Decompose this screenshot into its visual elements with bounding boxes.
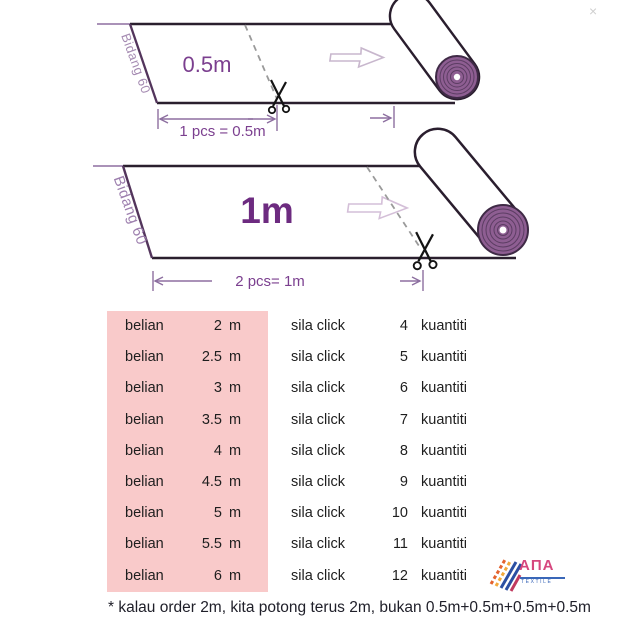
row-qty-value: 6	[368, 373, 408, 404]
row-buy-label: belian	[125, 467, 164, 498]
row-qty-value: 4	[368, 311, 408, 342]
dimension-label-top: 1 pcs = 0.5m	[160, 123, 285, 140]
row-buy-label: belian	[125, 311, 164, 342]
row-action-label: sila click	[291, 436, 345, 467]
row-qty-value: 9	[368, 467, 408, 498]
row-action-label: sila click	[291, 498, 345, 529]
row-action-label: sila click	[291, 405, 345, 436]
row-length-value: 3	[170, 373, 222, 404]
row-buy-label: belian	[125, 342, 164, 373]
row-qty-unit: kuantiti	[421, 373, 467, 404]
table-row: belian3.5msila click7kuantiti	[0, 405, 644, 436]
table-row: belian4.5msila click9kuantiti	[0, 467, 644, 498]
row-length-value: 4.5	[170, 467, 222, 498]
piece-size-label-bottom: 1m	[237, 190, 297, 232]
cut-line	[245, 25, 277, 99]
row-buy-label: belian	[125, 498, 164, 529]
logo-subtitle: TEXTILE	[521, 579, 552, 585]
fabric-roll	[381, 0, 488, 108]
table-row: belian2.5msila click5kuantiti	[0, 342, 644, 373]
footnote: * kalau order 2m, kita potong terus 2m, …	[108, 599, 591, 617]
row-length-value: 4	[170, 436, 222, 467]
product-instruction-image: ×	[0, 0, 644, 644]
row-qty-unit: kuantiti	[421, 311, 467, 342]
logo-text: AΠA	[519, 557, 555, 574]
row-qty-value: 5	[368, 342, 408, 373]
row-qty-unit: kuantiti	[421, 529, 467, 560]
row-length-value: 2.5	[170, 342, 222, 373]
row-buy-label: belian	[125, 373, 164, 404]
row-length-value: 2	[170, 311, 222, 342]
table-row: belian4msila click8kuantiti	[0, 436, 644, 467]
order-quantity-table: belian2msila click4kuantitibelian2.5msil…	[0, 311, 644, 592]
fabric-roll	[405, 119, 535, 262]
table-row: belian3msila click6kuantiti	[0, 373, 644, 404]
scissors-icon	[269, 80, 289, 113]
row-length-unit: m	[229, 311, 241, 342]
row-length-unit: m	[229, 436, 241, 467]
row-qty-unit: kuantiti	[421, 436, 467, 467]
row-qty-value: 8	[368, 436, 408, 467]
row-qty-value: 7	[368, 405, 408, 436]
row-length-value: 5	[170, 498, 222, 529]
row-buy-label: belian	[125, 405, 164, 436]
row-length-unit: m	[229, 529, 241, 560]
brand-logo: AΠA TEXTILE	[487, 553, 577, 597]
row-qty-unit: kuantiti	[421, 498, 467, 529]
row-length-unit: m	[229, 498, 241, 529]
row-action-label: sila click	[291, 373, 345, 404]
row-action-label: sila click	[291, 467, 345, 498]
row-qty-unit: kuantiti	[421, 342, 467, 373]
table-row: belian2msila click4kuantiti	[0, 311, 644, 342]
row-qty-value: 11	[368, 529, 408, 560]
row-length-unit: m	[229, 467, 241, 498]
row-buy-label: belian	[125, 529, 164, 560]
row-qty-unit: kuantiti	[421, 561, 467, 592]
row-length-value: 5.5	[170, 529, 222, 560]
roll-cutting-diagrams	[0, 0, 644, 312]
diagram-top-sheet	[97, 0, 488, 131]
row-action-label: sila click	[291, 342, 345, 373]
row-qty-unit: kuantiti	[421, 467, 467, 498]
row-action-label: sila click	[291, 561, 345, 592]
diagram-bottom-sheet	[93, 119, 536, 291]
row-length-value: 6	[170, 561, 222, 592]
table-row: belian5msila click10kuantiti	[0, 498, 644, 529]
row-action-label: sila click	[291, 311, 345, 342]
row-length-unit: m	[229, 561, 241, 592]
row-length-unit: m	[229, 342, 241, 373]
row-length-value: 3.5	[170, 405, 222, 436]
row-qty-value: 12	[368, 561, 408, 592]
row-qty-value: 10	[368, 498, 408, 529]
piece-size-label-top: 0.5m	[179, 52, 235, 78]
row-action-label: sila click	[291, 529, 345, 560]
scissors-icon	[414, 232, 437, 269]
dimension-label-bottom: 2 pcs= 1m	[205, 273, 335, 290]
row-qty-unit: kuantiti	[421, 405, 467, 436]
row-buy-label: belian	[125, 561, 164, 592]
cut-line	[367, 167, 421, 249]
row-length-unit: m	[229, 373, 241, 404]
direction-arrow-icon	[329, 48, 385, 67]
row-buy-label: belian	[125, 436, 164, 467]
row-length-unit: m	[229, 405, 241, 436]
